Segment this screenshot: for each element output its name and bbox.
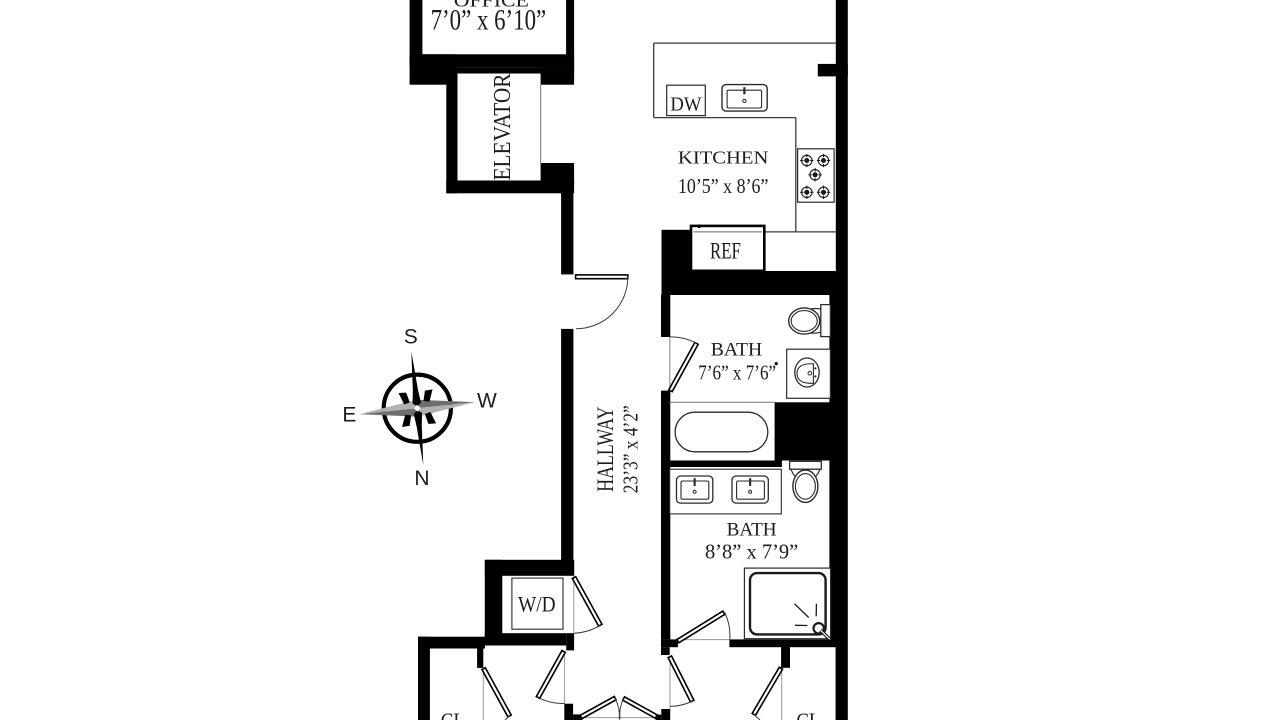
svg-text:CL: CL [441, 708, 465, 720]
svg-text:E: E [342, 404, 356, 427]
svg-text:S: S [404, 326, 418, 349]
svg-text:DW: DW [670, 94, 701, 116]
svg-text:W: W [477, 390, 497, 413]
svg-text:23’3” x 4’2”: 23’3” x 4’2” [619, 405, 643, 493]
svg-text:7’0” x 6’10”: 7’0” x 6’10” [431, 5, 547, 37]
svg-text:HALLWAY: HALLWAY [593, 406, 618, 491]
svg-text:REF: REF [710, 239, 741, 264]
svg-text:8’8” x 7’9”: 8’8” x 7’9” [705, 540, 798, 564]
svg-text:CL: CL [796, 708, 820, 720]
svg-text:KITCHEN: KITCHEN [678, 148, 769, 168]
svg-text:N: N [414, 467, 429, 490]
svg-text:7’6” x 7’6”: 7’6” x 7’6” [698, 361, 776, 385]
svg-text:ELEVATOR: ELEVATOR [490, 74, 516, 181]
svg-text:BATH: BATH [727, 520, 777, 541]
svg-text:W/D: W/D [518, 592, 556, 617]
svg-text:10’5” x 8’6”: 10’5” x 8’6” [678, 174, 769, 198]
svg-text:BATH: BATH [711, 339, 763, 360]
